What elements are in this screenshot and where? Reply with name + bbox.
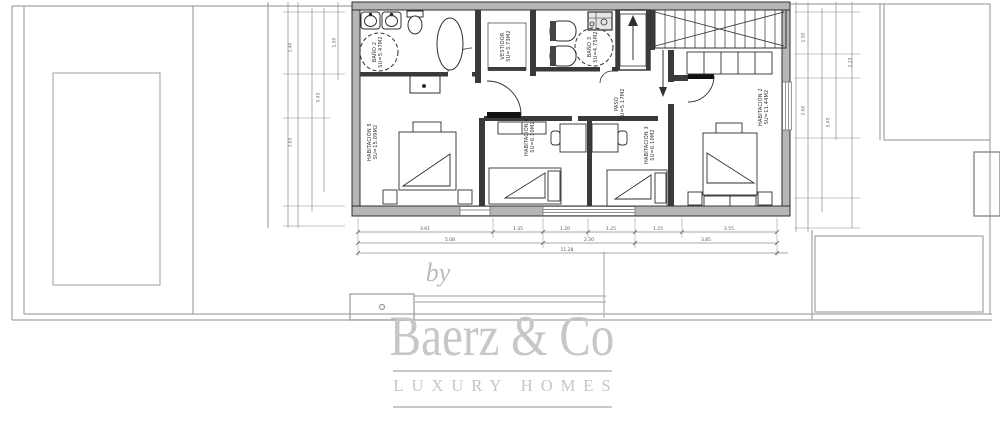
bed-icon: [703, 133, 757, 195]
bench-icon: [730, 196, 756, 206]
floor-plan-canvas: BAÑO 2SU=5.47M2 VESTIDORSU=3.73M2 BAÑO 3…: [0, 0, 1000, 428]
room-label-habitacion3: HABITACIÓN 3SU=6.10M2: [645, 116, 657, 174]
chair-icon: [618, 131, 627, 145]
watermark-by: by: [408, 258, 468, 288]
wardrobe-icon: [687, 52, 772, 74]
dim-label: 1.20: [560, 227, 570, 232]
dim-label: 5.08: [445, 238, 455, 243]
dim-label: 2.55: [724, 227, 734, 232]
elevator: [616, 10, 650, 70]
room-label-bano2: BAÑO 2SU=5.47M2: [373, 29, 385, 75]
nightstand-icon: [458, 190, 472, 204]
nightstand-icon: [758, 192, 772, 205]
room-label-vestidor: VESTIDORSU=3.73M2: [501, 24, 513, 68]
bathtub-icon: [437, 18, 463, 70]
pillow-icon: [548, 171, 560, 201]
dim-label: 3.65: [289, 137, 294, 147]
desk-icon: [592, 124, 618, 152]
chair-icon: [551, 131, 560, 145]
dim-label: 1.50: [333, 37, 338, 47]
watermark-brand: Baerz & Co: [370, 304, 634, 370]
nightstand-icon: [688, 192, 702, 205]
dim-label: 1.50: [802, 32, 807, 42]
nightstand-icon: [383, 190, 397, 204]
dim-label: 5.45: [317, 92, 322, 102]
bath3-fixtures: [550, 12, 613, 66]
room-label-habitacion2: HABITACIÓN 2SU=11.44M2: [759, 76, 771, 138]
desk-icon: [560, 124, 586, 152]
dimension-lines-left: [283, 2, 345, 228]
bench-icon: [704, 196, 730, 206]
dim-label: 2.30: [584, 238, 594, 243]
dim-label: 1.40: [289, 42, 294, 52]
dim-label: 1.25: [606, 227, 616, 232]
dim-label: 3.85: [701, 238, 711, 243]
pillow-icon: [716, 123, 742, 134]
bed-icon: [399, 132, 456, 190]
dim-label-total: 11.28: [561, 248, 574, 253]
dim-label: 5.45: [827, 117, 832, 127]
pool-outline: [53, 73, 160, 285]
dim-label: 3.61: [420, 227, 430, 232]
room-label-habitacion5: HABITACIÓN 5SU=15.09M2: [368, 111, 380, 173]
dim-label: 1.35: [513, 227, 523, 232]
watermark-rule-top: [393, 370, 612, 372]
room-label-paso: PASOSU=5.17M2: [615, 82, 627, 126]
room-label-bano3: BAÑO 3SU=4.75M2: [588, 25, 600, 69]
dim-label: 1.25: [653, 227, 663, 232]
room-label-habitacion4: HABITACIÓN 4SU=6.10M2: [525, 106, 537, 168]
watermark-rule-bottom: [393, 406, 612, 408]
dim-label: 2.15: [849, 57, 854, 67]
watermark-tagline: LUXURY HOMES: [370, 376, 634, 396]
door-leaf: [487, 112, 521, 118]
dim-label: 2.60: [802, 105, 807, 115]
pillow-icon: [655, 173, 666, 203]
pillow-icon: [413, 122, 441, 133]
